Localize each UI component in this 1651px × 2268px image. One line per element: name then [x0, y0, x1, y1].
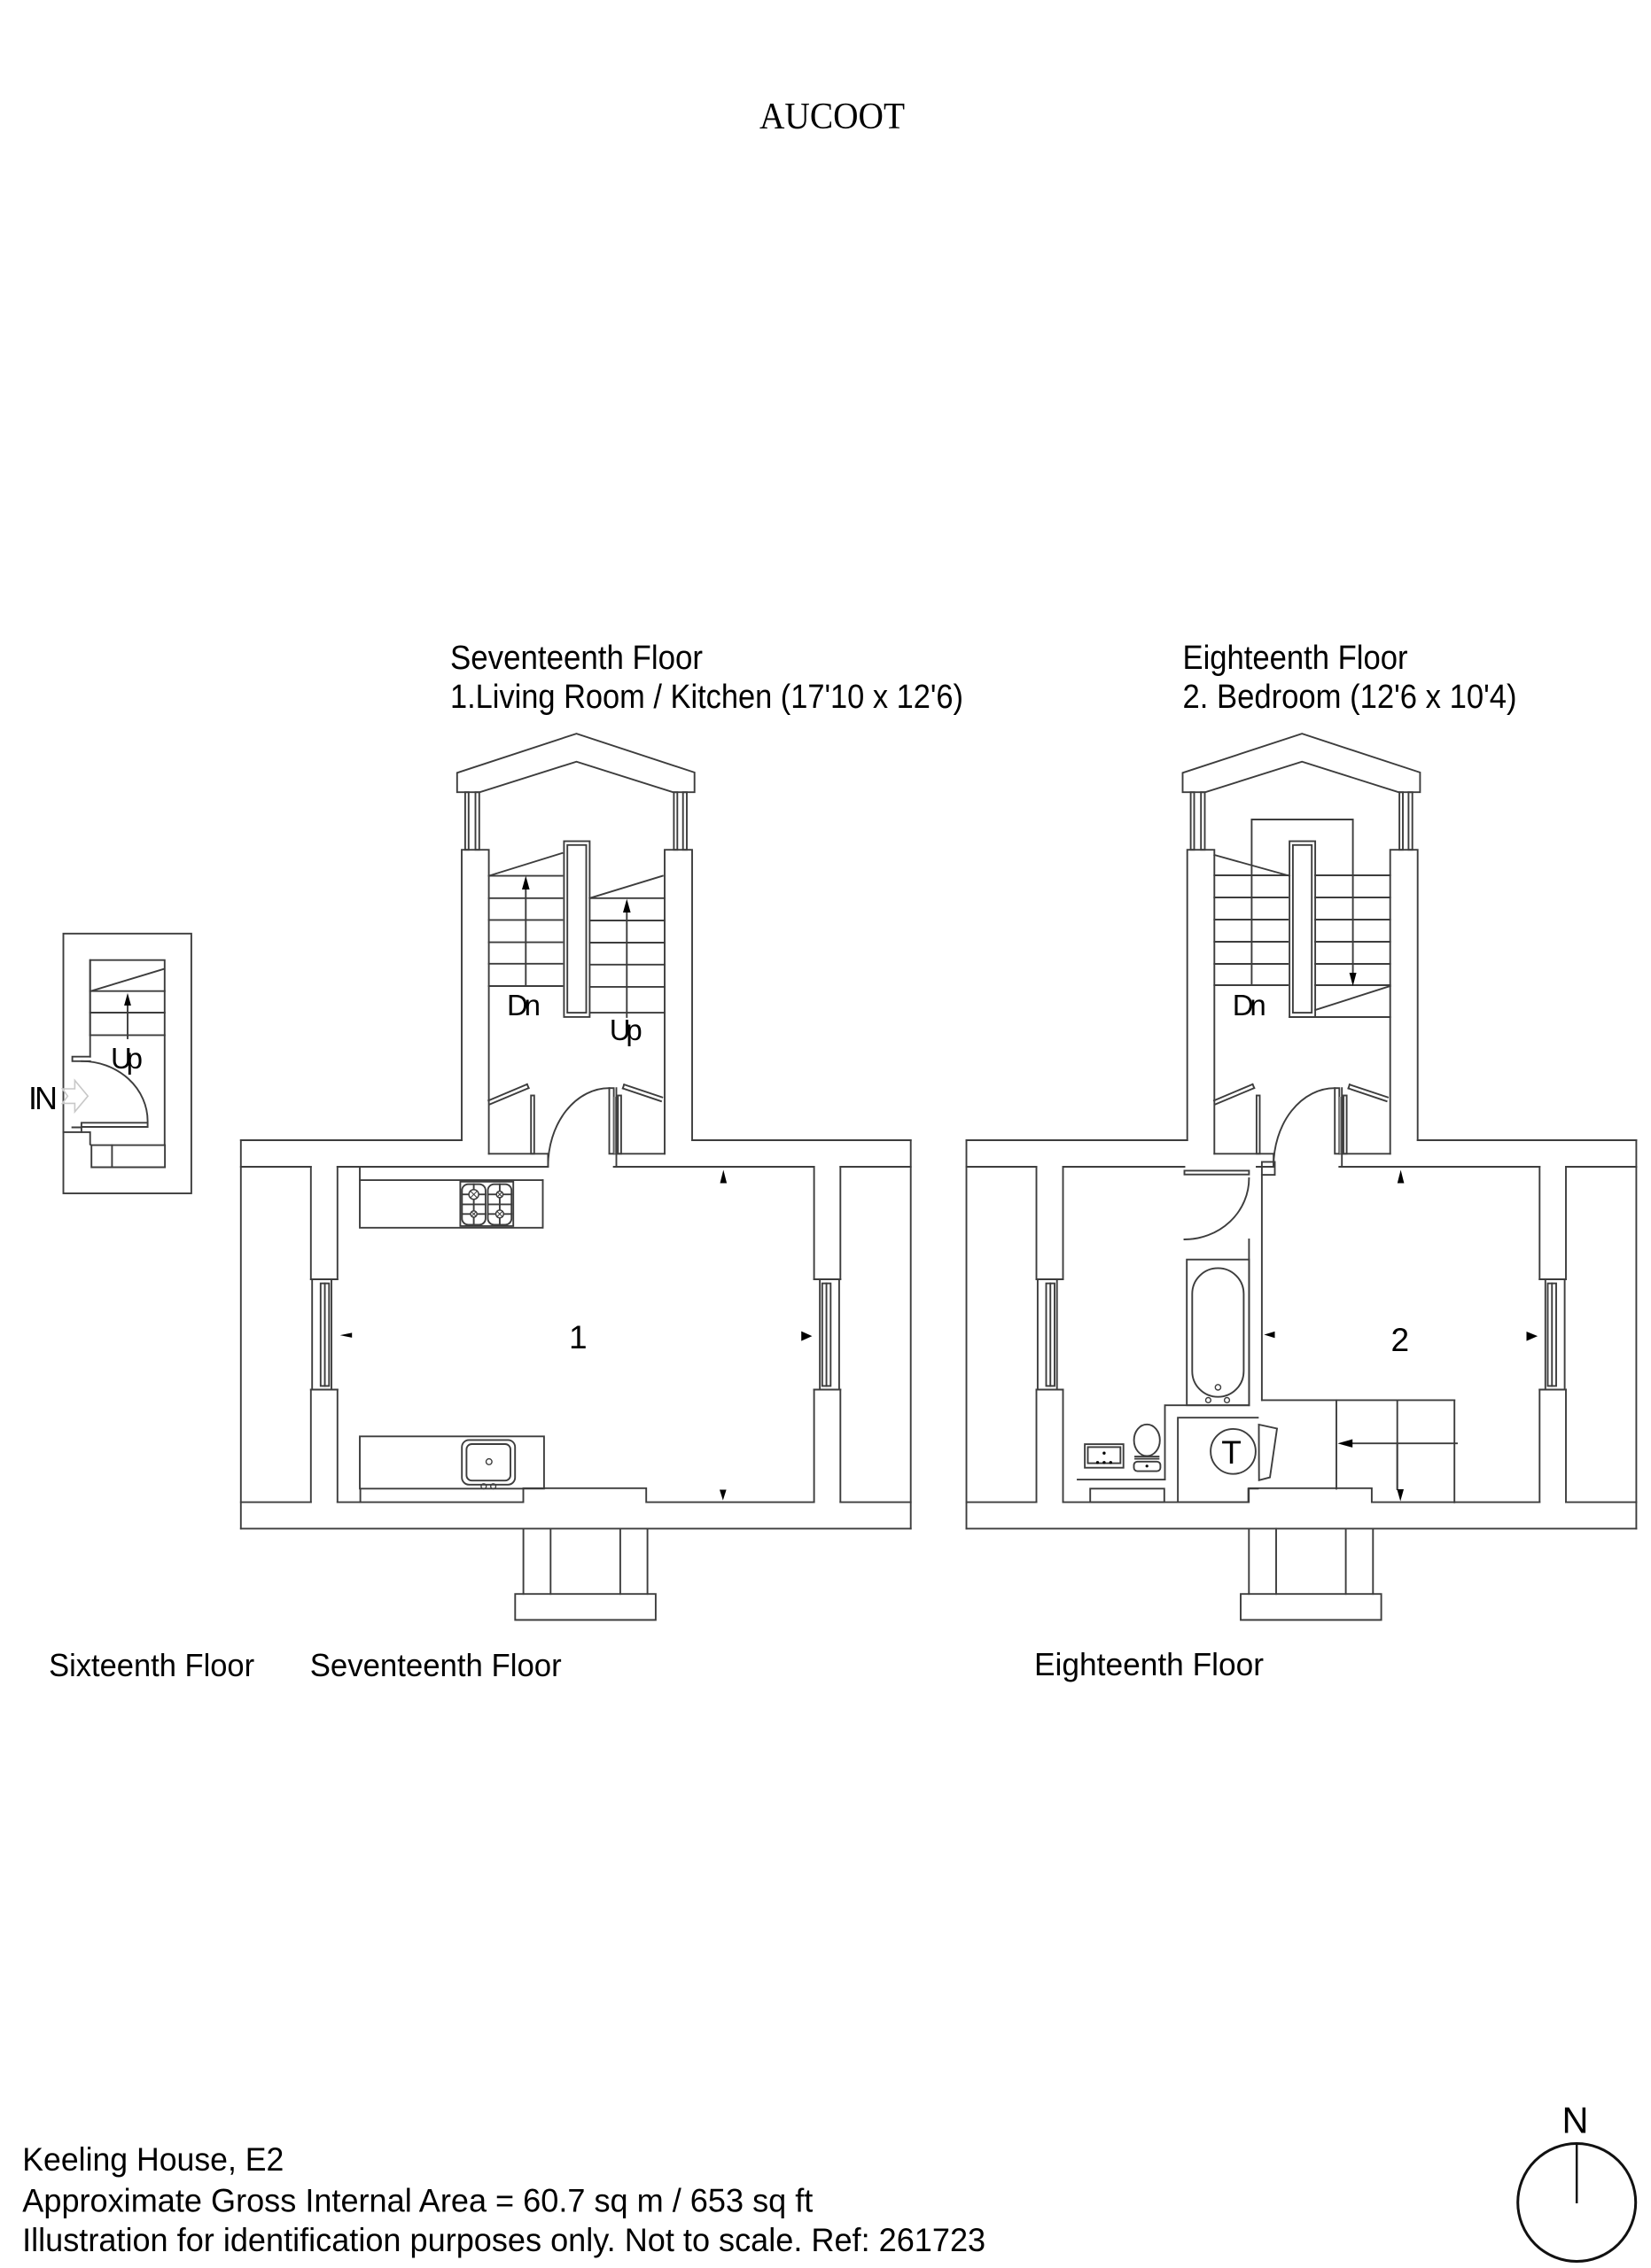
svg-text:Seventeenth Floor: Seventeenth Floor: [310, 1647, 562, 1683]
svg-text:N: N: [1562, 2100, 1589, 2141]
svg-text:Illustration for identificatio: Illustration for identification purposes…: [22, 2222, 985, 2258]
svg-text:1.Living Room / Kitchen (17'10: 1.Living Room / Kitchen (17'10 x 12'6): [450, 679, 963, 716]
svg-text:Seventeenth Floor: Seventeenth Floor: [450, 640, 703, 677]
svg-text:Sixteenth Floor: Sixteenth Floor: [49, 1647, 254, 1683]
svg-text:2: 2: [1391, 1322, 1410, 1358]
svg-text:2. Bedroom (12'6 x 10'4): 2. Bedroom (12'6 x 10'4): [1183, 679, 1517, 716]
svg-text:Dn: Dn: [1233, 989, 1266, 1021]
svg-text:Eighteenth Floor: Eighteenth Floor: [1034, 1646, 1264, 1682]
svg-text:AUCOOT: AUCOOT: [759, 97, 905, 137]
svg-text:Dn: Dn: [507, 989, 541, 1021]
svg-text:1: 1: [569, 1319, 588, 1355]
svg-text:T: T: [1221, 1434, 1242, 1471]
svg-text:IN: IN: [28, 1080, 58, 1116]
svg-text:Eighteenth Floor: Eighteenth Floor: [1183, 640, 1408, 677]
svg-text:Up: Up: [610, 1014, 642, 1046]
svg-text:Keeling House, E2: Keeling House, E2: [22, 2141, 284, 2178]
svg-text:Approximate Gross Internal Are: Approximate Gross Internal Area = 60.7 s…: [22, 2183, 814, 2219]
